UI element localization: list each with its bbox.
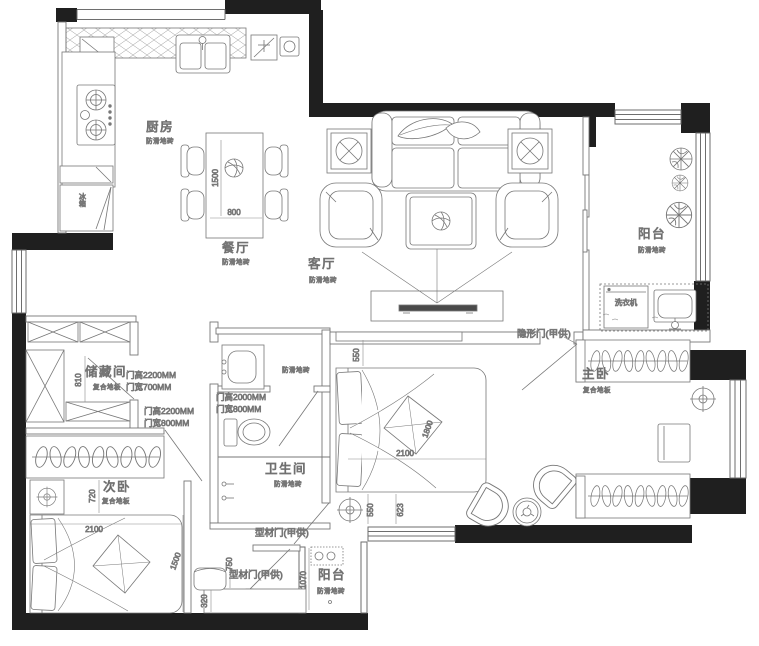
profile-door-master-label: 型材门(甲供) — [255, 527, 309, 539]
balcony-door-leaf — [250, 549, 290, 589]
second-wardrobe — [26, 436, 164, 478]
master-bedroom: 550 2100 1800 550 623 — [336, 328, 716, 533]
wall-second-top — [26, 428, 164, 434]
master-clear-dim: 623 — [396, 503, 405, 517]
fridge-label: 冰箱 — [79, 192, 87, 208]
coffee-table — [406, 193, 476, 249]
armchair-left — [320, 183, 382, 247]
vanity-floor-label: 防滑地砖 — [282, 365, 310, 374]
second-door-width-label: 门宽800MM — [144, 418, 189, 428]
bath-floor-label: 防滑地砖 — [274, 479, 302, 488]
dining-chair — [181, 189, 204, 221]
stove — [77, 85, 115, 145]
balcony-right-label: 阳台 — [638, 226, 666, 241]
master-head-dim: 550 — [352, 348, 361, 362]
toilet — [224, 419, 270, 446]
balcony-appliance-box — [311, 547, 343, 565]
master-bed — [336, 368, 486, 492]
wall-bottom — [12, 613, 368, 630]
kitchen-sink — [176, 35, 230, 73]
wall-vanity-top — [216, 328, 330, 334]
second-bed — [30, 515, 182, 613]
window-balcony-top — [615, 110, 681, 124]
wall-dining-storage — [26, 316, 136, 322]
plant — [670, 148, 692, 170]
bath-door-height-label: 门高2000MM — [216, 392, 266, 402]
profile-door-balcony-label: 型材门(甲供) — [229, 569, 283, 581]
hall-desk — [204, 589, 306, 613]
dining-chair — [265, 145, 288, 177]
master-shelf — [336, 332, 462, 341]
balcony-slider-panel-2 — [583, 210, 587, 252]
living-room: 客厅 防滑地砖 — [308, 111, 558, 321]
dining-chair — [265, 189, 288, 221]
balcony-bottom-floor-label: 防滑地砖 — [317, 586, 345, 595]
second-door-leaf — [165, 430, 202, 481]
master-foot-dim: 550 — [366, 503, 375, 517]
cabinet-depth-dim: 320 — [200, 594, 209, 608]
dining-label: 餐厅 — [222, 240, 250, 255]
washing-machine — [604, 286, 648, 328]
window-balcony-right — [696, 133, 710, 281]
hidden-door-label: 隐形门(甲供) — [517, 328, 571, 340]
floor-symbol — [337, 497, 363, 523]
wall-living-balcony-b — [583, 250, 589, 330]
wall-master-left — [322, 330, 330, 503]
second-bed-length-dim: 2100 — [85, 525, 103, 534]
storage-depth-dim: 810 — [74, 373, 83, 387]
balcony-depth-dim: 1070 — [299, 571, 308, 589]
bath-door-leaf — [279, 391, 318, 446]
window-master-bottom — [368, 527, 455, 541]
second-door-height-label: 门高2200MM — [144, 406, 194, 416]
hall-chair — [194, 568, 226, 590]
dining-table-length-dim: 1500 — [211, 169, 220, 187]
storage-wardrobe — [26, 350, 64, 422]
storage-door-width-label: 门宽700MM — [126, 382, 171, 392]
master-bed-length-dim: 2100 — [396, 449, 414, 458]
window-master-right — [730, 380, 746, 478]
wall-master-corner — [690, 478, 746, 514]
tv — [399, 305, 477, 311]
armchair-right — [496, 183, 558, 247]
storage-door-height-label: 门高2200MM — [126, 370, 176, 380]
wall-master-jog — [690, 350, 746, 380]
wall-kitchen-living — [309, 10, 323, 110]
master-round-table — [513, 498, 541, 526]
shower-fixture — [222, 482, 234, 500]
wall-top — [225, 0, 321, 14]
floor-plan-canvas: 冰箱 厨房 防滑地砖 1500 800 餐厅 防滑地砖 — [0, 0, 759, 646]
storage-label: 储藏间 — [85, 364, 127, 379]
washer-label: 洗衣机 — [615, 297, 638, 307]
master-window-seat — [658, 424, 690, 462]
wall-balcony-top-right — [681, 103, 710, 133]
hidden-door-leaf — [522, 344, 577, 390]
kitchen-floor-label: 防滑地砖 — [146, 136, 174, 145]
floor-symbol — [690, 386, 716, 412]
wall-master-bottom — [455, 525, 692, 543]
master-floor-label: 复合地板 — [583, 385, 611, 394]
master-wardrobe-bottom — [576, 474, 690, 518]
wall-storage-right-b — [130, 400, 138, 430]
dining-chair — [181, 145, 204, 177]
wall-left-step — [12, 233, 113, 250]
wall-living-balcony-a — [583, 117, 589, 175]
wall-second-right — [184, 481, 191, 613]
dining-room: 1500 800 餐厅 防滑地砖 — [181, 133, 288, 266]
second-bedroom: 720 2100 1500 次卧 复合地板 门高2200MM 门宽800MM — [26, 406, 202, 613]
plant — [672, 175, 688, 191]
wall-storage-right-a — [130, 322, 138, 355]
pillow — [31, 565, 57, 610]
wall-left — [12, 313, 26, 615]
tv-bench — [362, 249, 512, 321]
second-side-table — [30, 480, 64, 514]
floor-plan-drawing: 冰箱 厨房 防滑地砖 1500 800 餐厅 防滑地砖 — [0, 0, 759, 646]
dining-table-width-dim: 800 — [227, 208, 241, 217]
pillow — [337, 433, 364, 486]
kitchen-fixture-heater — [280, 37, 299, 56]
master-label: 主卧 — [582, 367, 610, 381]
living-label: 客厅 — [308, 256, 336, 271]
balcony-right-floor-label: 防滑地砖 — [638, 245, 666, 254]
wall-top-left-corner — [56, 8, 77, 22]
side-table-right — [508, 129, 552, 173]
plant — [666, 202, 691, 227]
window-left — [12, 250, 26, 313]
drain — [329, 601, 332, 604]
pillow — [337, 371, 364, 424]
balcony-bottom-label: 阳台 — [318, 567, 346, 582]
pillow — [31, 518, 57, 563]
side-table-left — [327, 129, 371, 173]
laundry-sink — [654, 290, 696, 329]
second-floor-label: 复合地板 — [102, 496, 130, 505]
window-kitchen-top — [77, 10, 225, 20]
storage-cabinet-low — [66, 402, 130, 421]
second-label: 次卧 — [103, 480, 131, 494]
balcony-right: 阳台 防滑地砖 洗衣机 — [600, 148, 708, 331]
chair-width-dim: 750 — [225, 557, 234, 571]
window-balcony-bottom-right — [361, 542, 367, 613]
wall-hall-balcony — [253, 545, 300, 551]
vanity-sink — [222, 345, 264, 389]
second-clear-dim: 720 — [88, 489, 97, 503]
wall-bath-door-b — [314, 386, 330, 392]
bath-door-width-label: 门宽800MM — [216, 404, 261, 414]
kitchen-fixture-hood — [251, 35, 277, 60]
living-floor-label: 防滑地砖 — [309, 275, 337, 284]
storage-cabinet-strip — [28, 322, 130, 342]
kitchen-cabinet-low — [60, 166, 113, 231]
dining-floor-label: 防滑地砖 — [222, 257, 250, 266]
bathroom: 防滑地砖 门高2000MM 门宽800MM 卫生间 防滑地砖 — [216, 345, 318, 500]
kitchen-label: 厨房 — [146, 119, 174, 134]
bath-label: 卫生间 — [265, 462, 307, 476]
